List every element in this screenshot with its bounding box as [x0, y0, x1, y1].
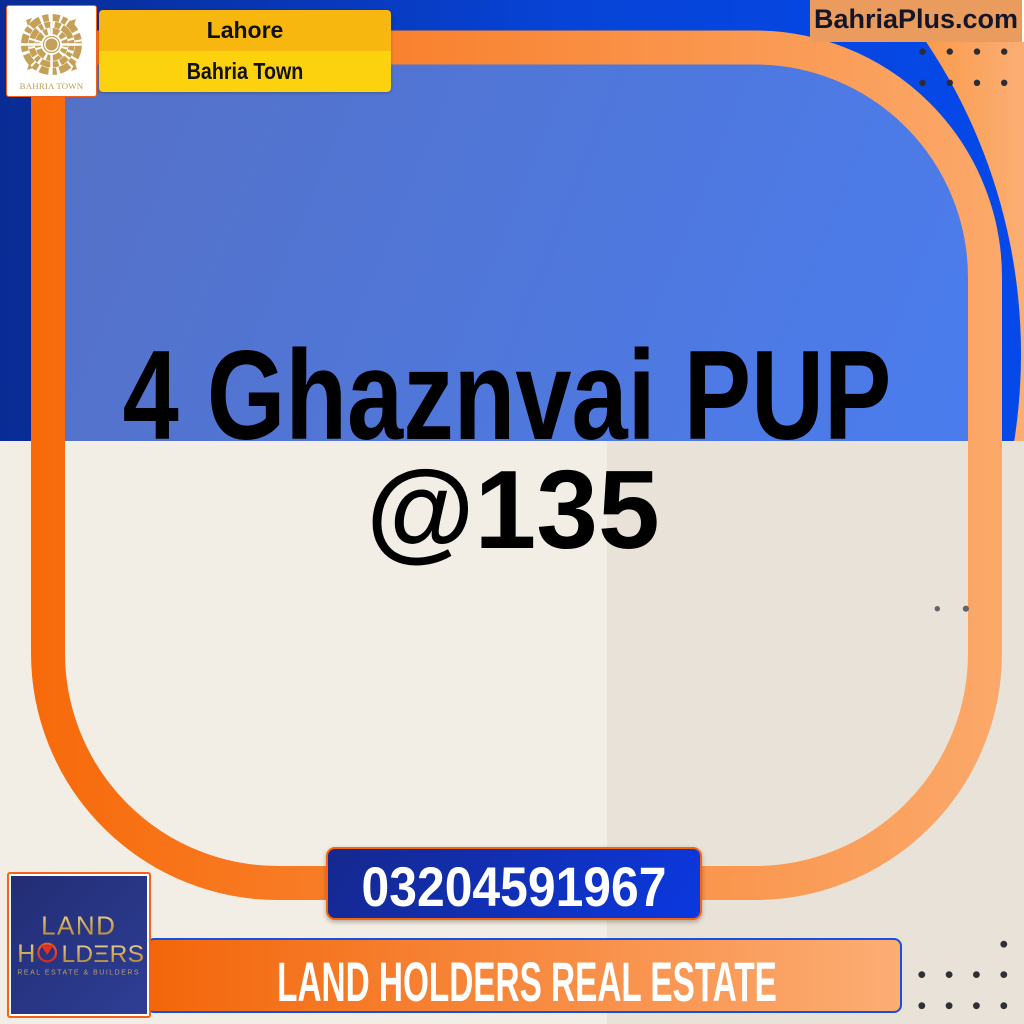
svg-text:LAND: LAND: [41, 911, 116, 941]
svg-text:REAL ESTATE & BUILDERS: REAL ESTATE & BUILDERS: [17, 970, 140, 977]
svg-text:H: H: [17, 940, 35, 968]
svg-text:LDΞRS: LDΞRS: [62, 941, 145, 968]
svg-text:BAHRIA TOWN: BAHRIA TOWN: [20, 81, 84, 91]
